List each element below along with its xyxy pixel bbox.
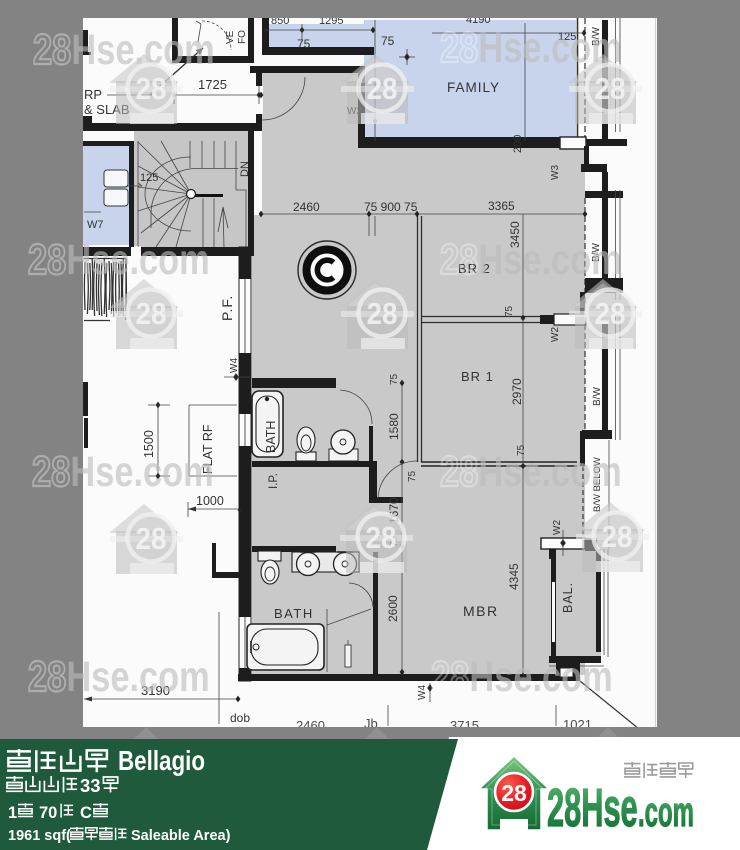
svg-text:75: 75 [504,305,515,317]
svg-text:75: 75 [381,34,395,48]
svg-text:4345: 4345 [507,563,521,590]
svg-text:BAL.: BAL. [561,582,575,613]
svg-text:W4: W4 [229,358,240,373]
svg-text:70: 70 [39,804,57,822]
svg-text:BATH: BATH [264,421,278,453]
svg-text:MBR: MBR [463,603,499,619]
svg-text:28Hse: 28Hse [547,778,638,838]
svg-text:P.F.: P.F. [219,295,235,321]
svg-text:BR 1: BR 1 [461,369,494,384]
svg-text:125: 125 [140,172,158,184]
svg-text:B/W: B/W [592,387,603,406]
svg-text:W3: W3 [550,165,561,180]
svg-text:75: 75 [297,37,311,51]
svg-text:2970: 2970 [510,378,524,405]
svg-text:33: 33 [80,775,101,796]
svg-text:1580: 1580 [387,413,401,440]
svg-text:75 900 75: 75 900 75 [364,200,418,214]
svg-text:.com: .com [638,789,694,836]
svg-text:W2: W2 [550,327,561,342]
svg-text:C: C [80,804,92,822]
svg-text:I.P.: I.P. [268,473,280,489]
svg-text:Bellagio: Bellagio [118,746,205,777]
svg-text:W7: W7 [87,219,104,231]
svg-text:W2: W2 [552,520,563,535]
svg-text:200: 200 [512,135,524,153]
svg-text:28: 28 [501,780,527,806]
svg-text:75: 75 [407,470,418,482]
svg-text:1000: 1000 [196,494,224,508]
svg-text:3365: 3365 [488,199,515,213]
svg-text:FO: FO [237,30,248,44]
svg-text:FAMILY: FAMILY [447,80,500,95]
svg-text:1961 sqf(: 1961 sqf( [8,828,71,844]
svg-text:2460: 2460 [293,200,320,214]
svg-text:1: 1 [8,804,17,822]
svg-text:RP: RP [84,87,102,102]
svg-text:VE: VE [225,30,236,44]
svg-text:75: 75 [389,373,400,385]
svg-text:dob: dob [230,711,250,725]
svg-text:2600: 2600 [386,595,400,622]
svg-text:DN: DN [239,161,251,177]
svg-text:1725: 1725 [198,77,227,92]
svg-text:Saleable Area): Saleable Area) [131,828,231,844]
svg-text:W4: W4 [417,685,428,700]
svg-text:BATH: BATH [274,606,314,621]
